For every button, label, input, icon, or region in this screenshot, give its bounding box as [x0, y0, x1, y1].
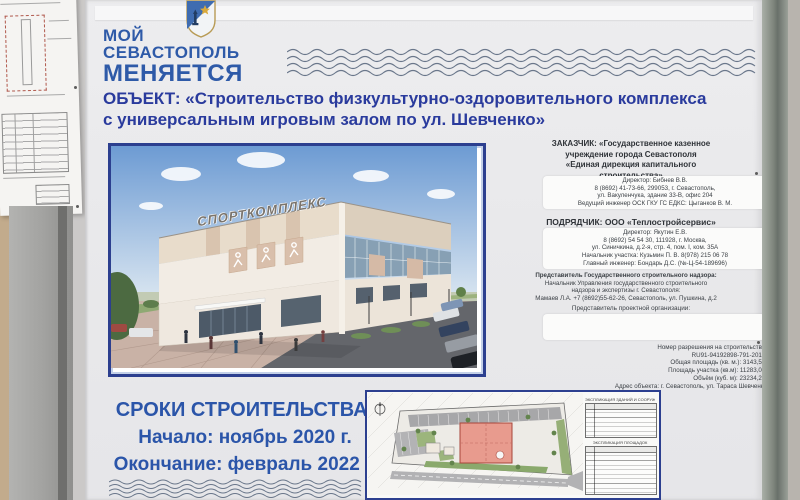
state-supervision-block: Представитель Государственного строитель…	[485, 272, 767, 303]
customer-header-line: учреждение города Севастополя	[495, 150, 767, 161]
technical-drawing-sheet	[0, 0, 82, 216]
customer-header-line: «Единая дирекция капитального	[495, 160, 767, 171]
screw	[76, 205, 79, 208]
drawing-line	[0, 2, 60, 5]
table-column-line	[32, 114, 35, 172]
drawing-line	[49, 20, 69, 22]
drawing-detail	[21, 19, 33, 85]
table-header-row	[586, 404, 656, 410]
logo-line-1: МОЙ	[103, 27, 243, 44]
post-shadow-streak	[58, 206, 67, 500]
siteplan-table1-title: ЭКСПЛИКАЦИЯ ЗДАНИЙ И СООРУЖЕНИЙ	[585, 397, 655, 402]
logo-line-3: МЕНЯЕТСЯ	[103, 61, 243, 86]
title-stamp	[35, 184, 70, 205]
screw	[755, 172, 758, 175]
table-column-line	[14, 114, 17, 172]
siteplan-table2	[585, 446, 657, 495]
logo-my-sevastopol-changes: МОЙ СЕВАСТОПОЛЬ МЕНЯЕТСЯ	[103, 27, 243, 86]
supervision-line: надзора и экспертизы г. Севастополя:	[485, 287, 767, 295]
contractor-detail-line: ул. Синичкина, д.2-я, стр. 4, пом. I, ко…	[543, 244, 767, 252]
contractor-detail-line: Начальник участка: Кузьмин П. В. 8(978) …	[543, 252, 767, 260]
supervision-line: Начальник Управления государственного ст…	[485, 280, 767, 288]
drawing-line	[3, 176, 65, 179]
timeline-header: СРОКИ СТРОИТЕЛЬСТВА:	[105, 397, 385, 424]
building-render-panel: СПОРТКОМПЛЕКС	[108, 143, 486, 377]
left-wall	[0, 0, 85, 500]
drawing-line	[47, 38, 71, 40]
permit-line: Номер разрешения на строительство:	[495, 344, 767, 352]
permit-line: Объём (куб. м): 23234,26;	[495, 375, 767, 383]
wave-lines-decoration-bottom	[109, 479, 373, 499]
contractor-detail-line: Главный инженер: Бондарь Д.С. (№-Ц-54-18…	[543, 260, 767, 268]
logo-line-2: СЕВАСТОПОЛЬ	[103, 44, 243, 61]
siteplan-table2-title: ЭКСПЛИКАЦИЯ ПЛОЩАДОК	[585, 440, 655, 445]
timeline-end: Окончание: февраль 2022 г.	[105, 451, 385, 478]
supervision-line: Мамаев Л.А. +7 (8692)55-62-26, Севастопо…	[485, 295, 767, 303]
customer-detail-line: Ведущий инженер ОСК ГКУ ГС ЕДКС: Цыганко…	[543, 200, 767, 208]
customer-details-box: Директор: Бибнев В.В. 8 (8692) 41-73-66,…	[543, 176, 767, 209]
table-column-divider	[594, 447, 595, 494]
permit-line: Общая площадь (кв. м.): 3143,57;	[495, 359, 767, 367]
photo-right-edge	[788, 0, 800, 500]
contractor-detail-line: 8 (8692) 54 54 30, 111928, г. Москва,	[543, 237, 767, 245]
design-organization-label: Представитель проектной организации:	[495, 305, 767, 313]
table-column-divider	[594, 404, 595, 437]
table-header-row	[586, 447, 656, 453]
contractor-details-box: Директор: Якутин Е.В. 8 (8692) 54 54 30,…	[543, 228, 767, 269]
permit-line: RU91-94192898-791-2018;	[495, 352, 767, 360]
object-title: ОБЪЕКТ: «Строительство физкультурно-оздо…	[103, 88, 758, 130]
construction-timeline-block: СРОКИ СТРОИТЕЛЬСТВА: Начало: ноябрь 2020…	[105, 397, 385, 478]
wave-lines-decoration-top	[287, 48, 763, 78]
site-plan-drawing	[368, 393, 583, 495]
drawing-table	[1, 112, 69, 174]
information-board: МОЙ СЕВАСТОПОЛЬ МЕНЯЕТСЯ ОБЪЕКТ: «Строит…	[85, 0, 762, 500]
customer-header-line: ЗАКАЗЧИК: «Государственное казенное	[495, 139, 767, 150]
metal-post	[762, 0, 788, 500]
siteplan-table1	[585, 403, 657, 438]
customer-detail-line: 8 (8692) 41-73-66, 299053, г. Севастопол…	[543, 185, 767, 193]
customer-detail-line: ул. Вакуленчука, здание 33-В, офис 204	[543, 192, 767, 200]
contractor-block-header: ПОДРЯДЧИК: ООО «Теплостройсервис»	[495, 217, 767, 228]
screw	[757, 341, 760, 344]
contractor-detail-line: Директор: Якутин Е.В.	[543, 229, 767, 237]
permit-line: Площадь участка (кв.м): 11283,00;	[495, 367, 767, 375]
timeline-start: Начало: ноябрь 2020 г.	[105, 424, 385, 451]
permit-info-block: Номер разрешения на строительство: RU91-…	[495, 344, 767, 390]
object-title-line-1: ОБЪЕКТ: «Строительство физкультурно-оздо…	[103, 88, 758, 109]
customer-detail-line: Директор: Бибнев В.В.	[543, 177, 767, 185]
customer-block-header: ЗАКАЗЧИК: «Государственное казенное учре…	[495, 139, 767, 181]
site-plan-panel: ЭКСПЛИКАЦИЯ ЗДАНИЙ И СООРУЖЕНИЙ ЭКСПЛИКА…	[365, 390, 661, 500]
supervision-line: Представитель Государственного строитель…	[485, 272, 767, 280]
drawing-line	[7, 94, 65, 97]
design-organization-signature-box	[543, 314, 765, 340]
building-render-illustration	[111, 146, 477, 368]
screw	[74, 86, 77, 89]
object-title-line-2: с универсальным игровым залом по ул. Шев…	[103, 109, 758, 130]
photo-of-construction-info-board: МОЙ СЕВАСТОПОЛЬ МЕНЯЕТСЯ ОБЪЕКТ: «Строит…	[0, 0, 800, 500]
